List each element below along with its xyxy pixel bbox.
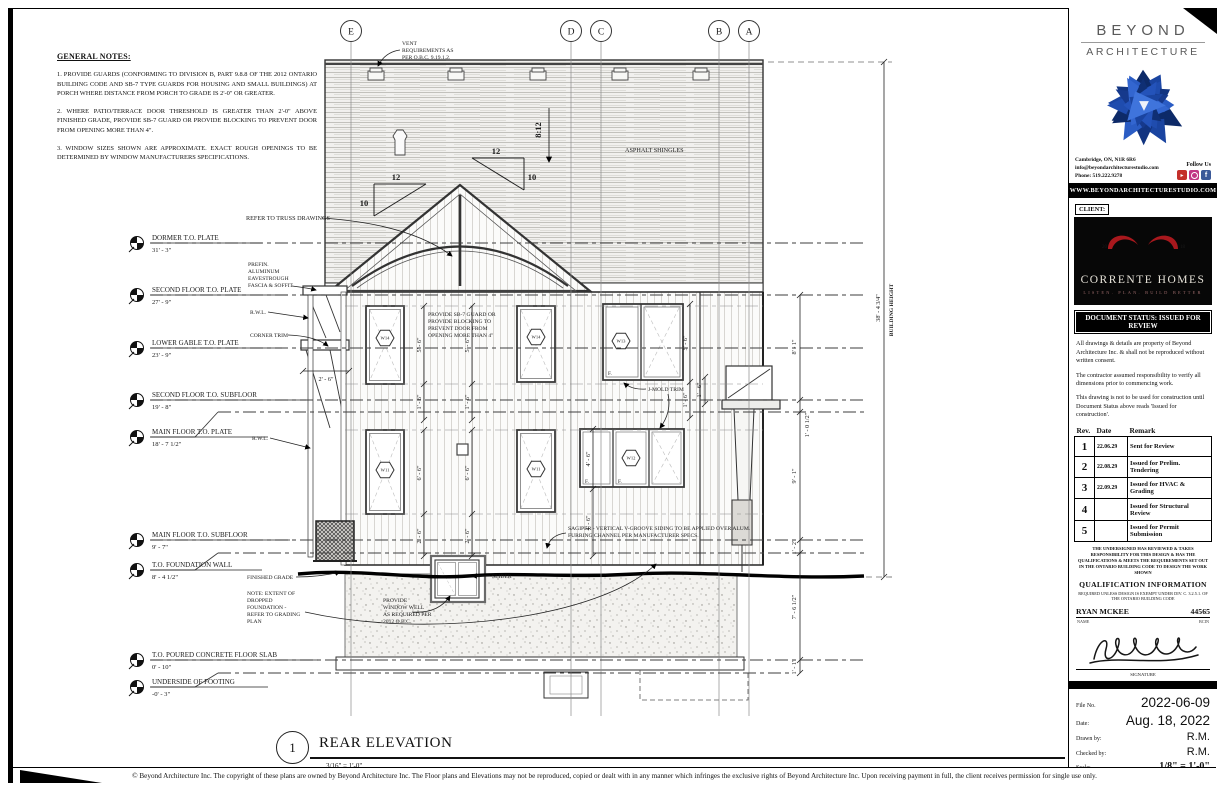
window-tag: W12 (627, 456, 637, 461)
table-row: 1 22.06.29 Sent for Review (1075, 437, 1212, 456)
dim-label: 8' - 1" (791, 339, 798, 354)
table-row: 4 Issued for Structural Review (1075, 499, 1212, 520)
file-no-value: 2022-06-09 (1141, 695, 1210, 710)
eaves-note: PREFIN. (248, 262, 269, 268)
table-row: 5 Issued for Permit Submission (1075, 520, 1212, 541)
document-status-bar: DOCUMENT STATUS: ISSUED FOR REVIEW (1074, 310, 1212, 334)
window-w12-triple: W12 F. F. (580, 429, 684, 487)
rev-number: 1 (1075, 437, 1095, 456)
dim-label: 2' - 6" (416, 528, 423, 543)
view-title-underline (310, 757, 1065, 759)
firm-email: info@beyondarchitecturestudio.com (1075, 165, 1159, 173)
slope-ratio-label: 8:12 (533, 122, 543, 138)
window-well-note: PROVIDE (383, 598, 408, 604)
designer-name: RYAN MCKEE (1076, 607, 1129, 616)
firm-name-line1: BEYOND (1069, 22, 1217, 39)
client-tagline: LISTEN. PLAN. BUILD BETTER (1077, 290, 1209, 295)
client-label: CLIENT: (1075, 204, 1109, 215)
dim-label: 9' - 1" (791, 468, 798, 483)
level-elev: -0' - 3" (152, 691, 170, 698)
grid-bubble-label: C (598, 28, 604, 38)
firm-logo-block: BEYOND ARCHITECTURE (1069, 8, 1217, 183)
slope-rise-label: 10 (360, 198, 369, 208)
divider (1081, 42, 1205, 43)
vent-note: VENT (402, 41, 417, 47)
corner-trim-note: CORNER TRIM (250, 333, 288, 339)
level-markers (129, 237, 144, 697)
revision-table: Rev. Date Remark 1 22.06.29 Sent for Rev… (1074, 425, 1212, 542)
dim-label: 1' - 6" (464, 394, 471, 409)
client-year-left: 20 (1102, 245, 1108, 250)
view-number: 1 (289, 740, 296, 756)
view-number-bubble: 1 (276, 731, 309, 764)
disclaimers: All drawings & details are property of B… (1069, 340, 1217, 419)
bcin-label: BCIN (1199, 619, 1209, 624)
window-well-note: 2012 O.B.C. (383, 619, 412, 625)
truss-note: REFER TO TRUSS DRAWINGS (246, 215, 330, 222)
general-notes: GENERAL NOTES: 1. PROVIDE GUARDS (CONFOR… (57, 52, 317, 171)
level-label: SECOND FLOOR T.O. SUBFLOOR (152, 391, 257, 399)
dim-label: 5' - 6" (682, 335, 689, 350)
rev-date (1095, 520, 1128, 541)
dropped-foundation-note: REFER TO GRADING (247, 612, 300, 618)
disclaimer: This drawing is not to be used for const… (1076, 394, 1210, 419)
signature-label: SIGNATURE (1069, 670, 1217, 681)
window-w14-right: W14 (517, 306, 555, 382)
rev-date (1095, 499, 1128, 520)
sb7-note: PROVIDE SB-7 GUARD OR (428, 312, 496, 318)
finished-grade-note: FINISHED GRADE (247, 575, 294, 581)
grid-bubble-label: A (746, 28, 753, 38)
dim-label: 5' - 6" (464, 337, 471, 352)
signature (1076, 625, 1210, 670)
general-note: 2. WHERE PATIO/TERRACE DOOR THRESHOLD IS… (57, 107, 317, 136)
rwl-note: R.W.L. (252, 436, 269, 442)
foundation (336, 574, 748, 700)
follow-us-label: Follow Us (1177, 162, 1211, 168)
rev-header: Date (1095, 425, 1128, 437)
dim-label: 1' - 6" (682, 392, 689, 407)
client-name: CORRENTE HOMES (1077, 274, 1209, 286)
general-notes-title: GENERAL NOTES: (57, 52, 317, 61)
designer-bcin: 44565 (1191, 607, 1211, 616)
wall-light (457, 444, 468, 455)
slope-rise-label: 10 (528, 172, 537, 182)
rev-number: 2 (1075, 456, 1095, 477)
dim-label: 1' - 6" (416, 394, 423, 409)
dim-label: 1' - 6" (696, 382, 703, 397)
level-elev: 18' - 7 1/2" (152, 441, 182, 448)
sb7-note: PREVENT DOOR FROM (428, 326, 488, 332)
rev-header: Rev. (1075, 425, 1095, 437)
rev-number: 4 (1075, 499, 1095, 520)
sagiper-note: SAGIPER - VERTICAL V-GROOVE SIDING TO BE… (568, 526, 751, 532)
firm-website-bar: WWW.BEYONDARCHITECTURESTUDIO.COM (1069, 183, 1217, 198)
grid-bubble-label: B (716, 28, 722, 38)
general-note: 3. WINDOW SIZES SHOWN ARE APPROXIMATE. E… (57, 144, 317, 163)
asphalt-note: ASPHALT SHINGLES (625, 147, 684, 154)
rev-date: 22.08.29 (1095, 456, 1128, 477)
level-label: LOWER GABLE T.O. PLATE (152, 339, 239, 347)
pane-label: F. (618, 479, 622, 485)
drawing-sheet: W14 W14 W13 F. W11 (0, 0, 1224, 792)
level-label: UNDERSIDE OF FOOTING (152, 678, 235, 686)
slope-run-label: 12 (392, 172, 401, 182)
ac-unit (313, 521, 357, 561)
level-label: T.O. POURED CONCRETE FLOOR SLAB (152, 651, 277, 659)
level-elev: 27' - 9" (152, 299, 172, 306)
facebook-icon: f (1201, 170, 1211, 180)
vent-note: PER O.B.C. 9.19.1.2. (402, 55, 451, 61)
jmold-note: J-MOLD TRIM (648, 387, 684, 393)
qualification-subnote: REQUIRED UNLESS DESIGN IS EXEMPT UNDER D… (1075, 591, 1211, 602)
grid-bubbles: E D C B A (341, 21, 760, 42)
dim-label: 1' - 1" (791, 659, 798, 674)
rev-remark: Issued for Permit Submission (1128, 520, 1212, 541)
table-row: 2 22.08.29 Issued for Prelim. Tendering (1075, 456, 1212, 477)
firm-logo-icon (1084, 58, 1202, 150)
view-title: REAR ELEVATION (319, 735, 453, 752)
level-labels: DORMER T.O. PLATE 31' - 3" SECOND FLOOR … (151, 234, 318, 698)
name-label: NAME (1077, 619, 1089, 624)
dim-label: 2' - 6" (464, 528, 471, 543)
dropped-foundation-note: DROPPED (247, 598, 273, 604)
window-tag: W11 (532, 467, 541, 472)
sb7-note: OPENING MORE THAN 4" (428, 333, 493, 339)
dim-label: 1' - 2" (791, 539, 798, 554)
firm-name-line2: ARCHITECTURE (1069, 46, 1217, 58)
window-tag: W14 (532, 335, 542, 340)
rev-remark: Sent for Review (1128, 437, 1212, 456)
level-elev: 19' - 8" (152, 404, 172, 411)
window-w14-left: W14 (366, 306, 404, 384)
pane-label: F. (585, 479, 589, 485)
drawn-by-value: R.M. (1187, 731, 1210, 743)
level-label: MAIN FLOOR T.O. SUBFLOOR (152, 531, 248, 539)
slider-note: SLIDER (492, 574, 512, 580)
window-tag: W11 (381, 468, 390, 473)
rev-remark: Issued for Prelim. Tendering (1128, 456, 1212, 477)
dim-label: 5' - 6" (416, 337, 423, 352)
dropped-foundation-note: FOUNDATION - (247, 605, 286, 611)
level-label: MAIN FLOOR T.O. PLATE (152, 428, 232, 436)
rev-remark: Issued for Structural Review (1128, 499, 1212, 520)
qualification-statement: THE UNDERSIGNED HAS REVIEWED & TAKES RES… (1075, 546, 1211, 576)
corner-triangle-bottom-left (20, 770, 102, 783)
firm-phone: Phone: 519.222.9278 (1075, 173, 1159, 181)
file-info: File No. 2022-06-09 Date: Aug. 18, 2022 … (1069, 689, 1217, 768)
qualification-block: THE UNDERSIGNED HAS REVIEWED & TAKES RES… (1069, 542, 1217, 601)
rev-header: Remark (1128, 425, 1212, 437)
grid-bubble-label: E (348, 28, 354, 38)
level-elev: 31' - 3" (152, 247, 172, 254)
window-well (431, 556, 485, 602)
eaves-note: ALUMINUM (248, 269, 279, 275)
level-label: T.O. FOUNDATION WALL (152, 561, 232, 569)
window-w11-left: W11 (366, 430, 404, 514)
disclaimer: All drawings & details are property of B… (1076, 340, 1210, 365)
building-height-label: BUILDING HEIGHT (889, 284, 895, 337)
window-well-note: AS REQUIRED PER (383, 612, 432, 618)
sb7-note: PROVIDE BLOCKING TO (428, 319, 491, 325)
rwl-note: R.W.L. (250, 310, 267, 316)
pane-label: F. (608, 371, 612, 377)
divider-bar (1069, 681, 1217, 689)
dim-label: 7' - 6 1/2" (791, 594, 798, 619)
file-no-label: File No. (1076, 703, 1096, 709)
copyright-strip: © Beyond Architecture Inc. The copyright… (13, 767, 1216, 783)
window-tag: W14 (381, 336, 391, 341)
vent-stack (393, 130, 407, 155)
slope-run-label: 12 (492, 146, 501, 156)
grid-bubble-label: D (568, 28, 575, 38)
drawn-by-label: Drawn by: (1076, 736, 1102, 742)
eaves-note: FASCIA & SOFFIT (248, 283, 294, 289)
youtube-icon: ▸ (1177, 170, 1187, 180)
dim-label: 6' - 6" (416, 465, 423, 480)
window-w13-double: W13 F. (603, 304, 683, 380)
dim-label: 6' - 6" (464, 465, 471, 480)
dim-label: 4' - 6" (585, 515, 592, 530)
rev-date: 22.09.29 (1095, 478, 1128, 499)
firm-address: Cambridge, ON, N1R 6R6 (1075, 157, 1159, 165)
level-elev: 9' - 7" (152, 544, 168, 551)
level-elev: 8' - 4 1/2" (152, 574, 178, 581)
dropped-foundation-note: PLAN (247, 619, 262, 625)
date-value: Aug. 18, 2022 (1126, 713, 1210, 728)
firm-contact: Cambridge, ON, N1R 6R6 info@beyondarchit… (1075, 157, 1159, 180)
level-label: SECOND FLOOR T.O. PLATE (152, 286, 241, 294)
level-label: DORMER T.O. PLATE (152, 234, 219, 242)
dropped-foundation-note: NOTE: EXTENT OF (247, 591, 295, 597)
general-note: 1. PROVIDE GUARDS (CONFORMING TO DIVISIO… (57, 70, 317, 99)
window-well-note: WINDOW WELL (383, 605, 425, 611)
checked-by-label: Checked by: (1076, 751, 1106, 757)
rev-number: 3 (1075, 478, 1095, 499)
rev-remark: Issued for HVAC & Grading (1128, 478, 1212, 499)
title-block: BEYOND ARCHITECTURE (1068, 8, 1217, 768)
checked-by-value: R.M. (1187, 746, 1210, 758)
rev-number: 5 (1075, 520, 1095, 541)
client-logo-block: 20 18 CORRENTE HOMES LISTEN. PLAN. BUILD… (1074, 217, 1212, 305)
vent-note: REQUIREMENTS AS (402, 48, 453, 54)
window-w11-right: W11 (517, 430, 555, 512)
rev-date: 22.06.29 (1095, 437, 1128, 456)
client-year-right: 18 (1180, 245, 1186, 250)
copyright-text: © Beyond Architecture Inc. The copyright… (132, 772, 1097, 780)
disclaimer: The contractor assumed responsibility to… (1076, 372, 1210, 389)
instagram-icon (1189, 170, 1199, 180)
level-elev: 0' - 10" (152, 664, 172, 671)
dim-label: 1' - 0 1/2" (804, 412, 811, 437)
qualification-heading: QUALIFICATION INFORMATION (1075, 580, 1211, 589)
date-label: Date: (1076, 721, 1089, 727)
dim-label: 2' - 6" (319, 376, 334, 383)
building-height-value: 38' - 4 3/4" (875, 294, 882, 322)
level-elev: 23' - 9" (152, 352, 172, 359)
table-row: 3 22.09.29 Issued for HVAC & Grading (1075, 478, 1212, 499)
window-tag: W13 (617, 339, 627, 344)
dim-label: 4' - 6" (585, 451, 592, 466)
client-logo-icon: 20 18 (1078, 223, 1208, 267)
eaves-note: EAVESTROUGH (248, 276, 289, 282)
sagiper-note: FURRING CHANNEL PER MANUFACTURER SPECS. (568, 533, 699, 539)
